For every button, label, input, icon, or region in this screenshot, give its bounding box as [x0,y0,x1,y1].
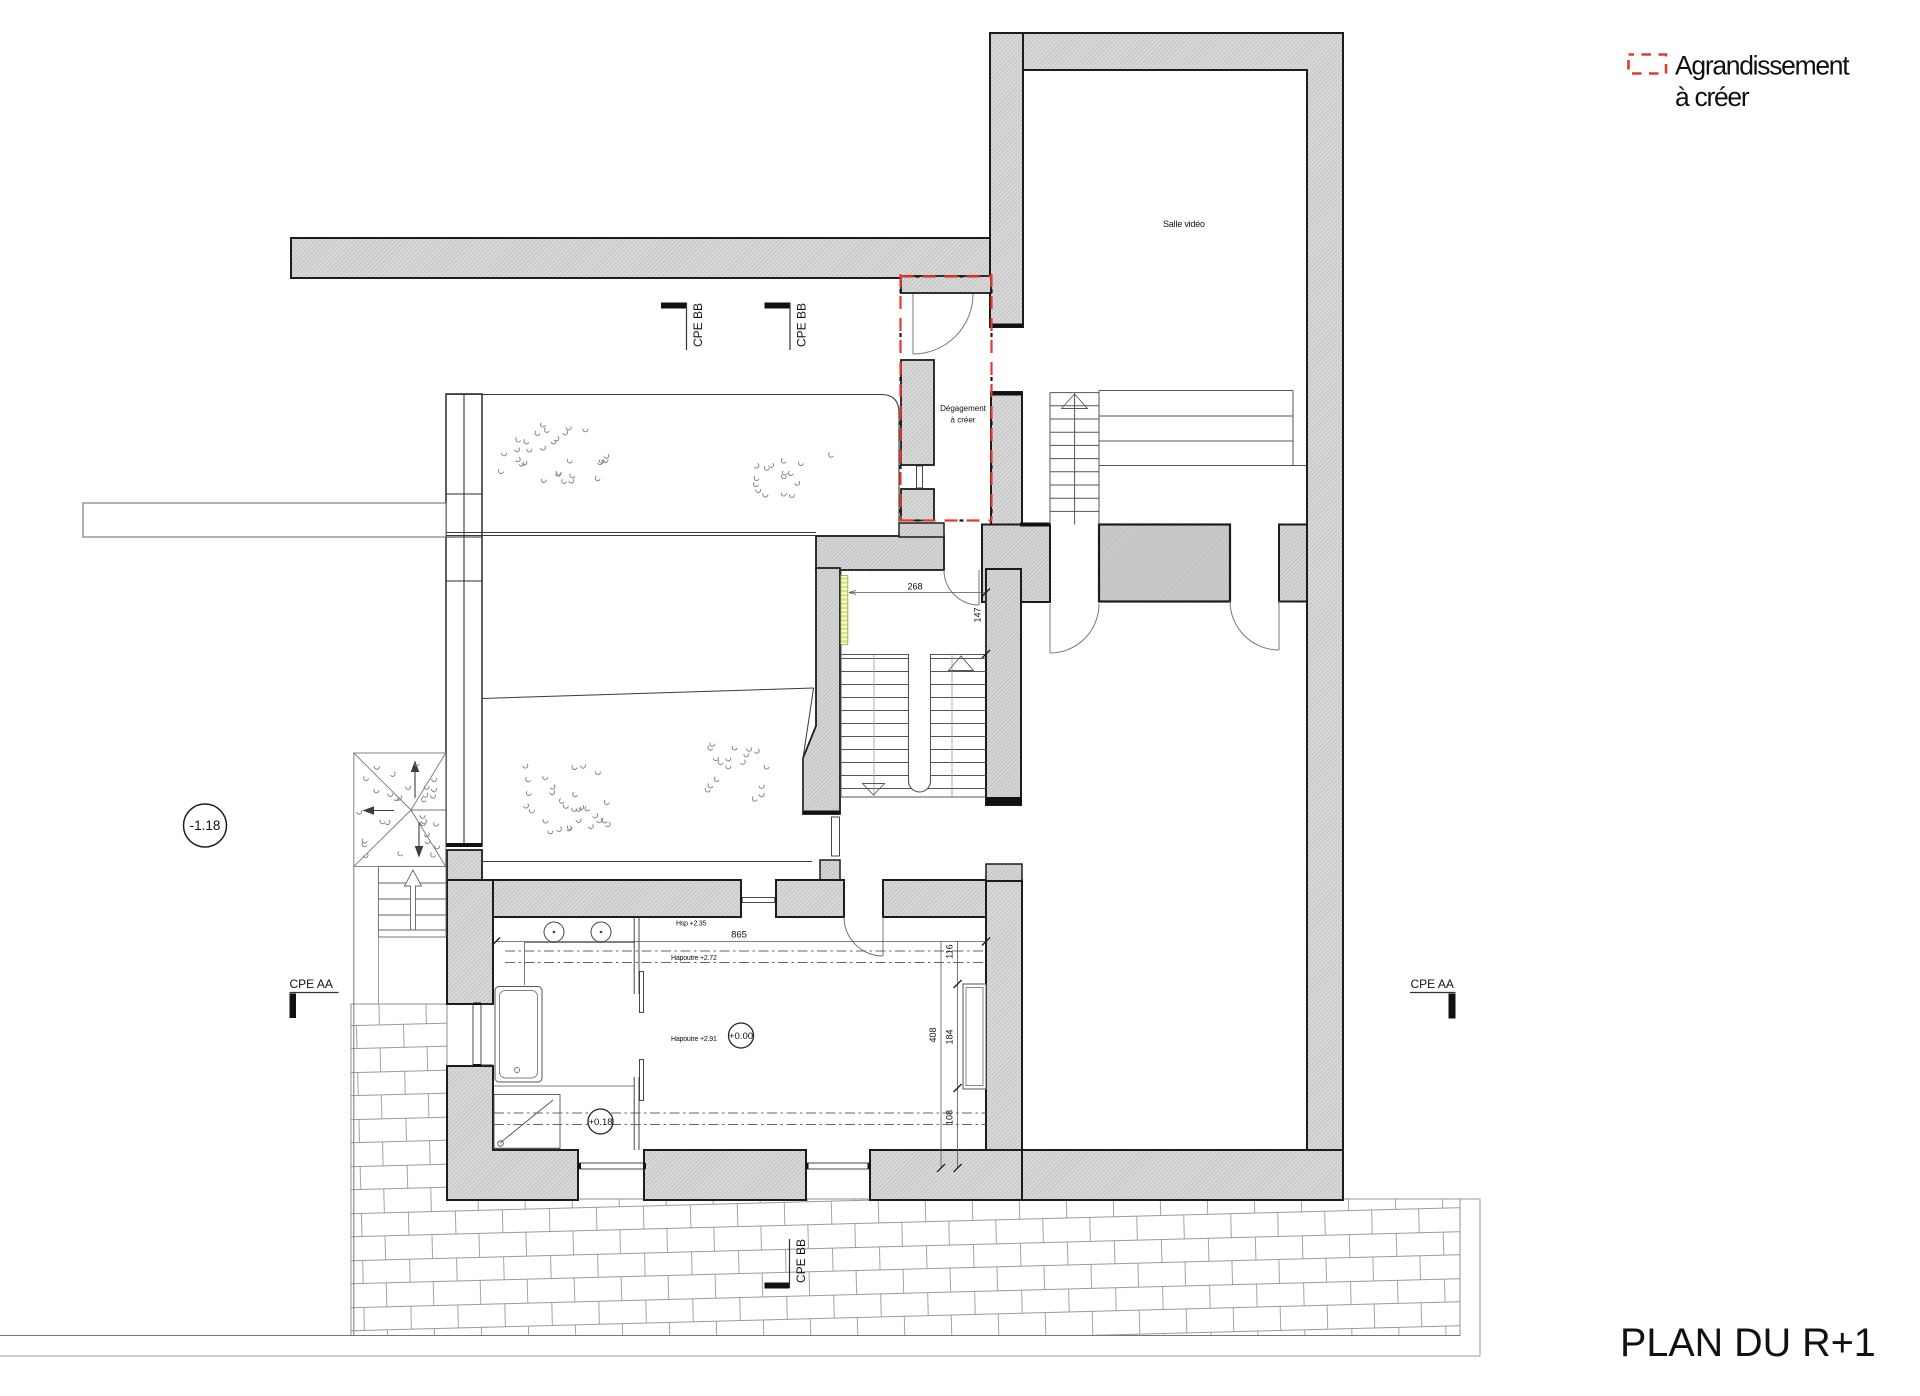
svg-text:PLAN DU R+1: PLAN DU R+1 [1620,1321,1876,1365]
svg-text:Hsp +2.35: Hsp +2.35 [676,921,707,928]
svg-text:CPE BB: CPE BB [794,1239,808,1283]
svg-text:CPE BB: CPE BB [691,303,705,347]
svg-text:à créer: à créer [951,416,976,425]
svg-text:CPE BB: CPE BB [795,303,809,347]
svg-text:Dégagement: Dégagement [940,404,987,413]
svg-text:108: 108 [945,1110,955,1125]
svg-text:à créer: à créer [1675,82,1750,112]
svg-text:+0.00: +0.00 [729,1031,753,1042]
svg-text:865: 865 [731,930,747,941]
svg-text:-1.18: -1.18 [190,818,221,833]
svg-text:CPE AA: CPE AA [1411,977,1454,991]
svg-text:Agrandissement: Agrandissement [1675,51,1850,81]
svg-text:116: 116 [945,944,955,958]
svg-text:Hapoutre +2.72: Hapoutre +2.72 [671,955,717,962]
svg-text:268: 268 [907,582,922,592]
svg-text:184: 184 [945,1029,955,1044]
svg-text:CPE AA: CPE AA [290,977,333,991]
svg-text:408: 408 [928,1027,938,1042]
svg-text:Salle vidéo: Salle vidéo [1163,219,1205,229]
svg-text:+0.18: +0.18 [588,1117,612,1128]
svg-text:147: 147 [973,607,983,622]
svg-text:Hapoutre +2.91: Hapoutre +2.91 [671,1036,717,1043]
